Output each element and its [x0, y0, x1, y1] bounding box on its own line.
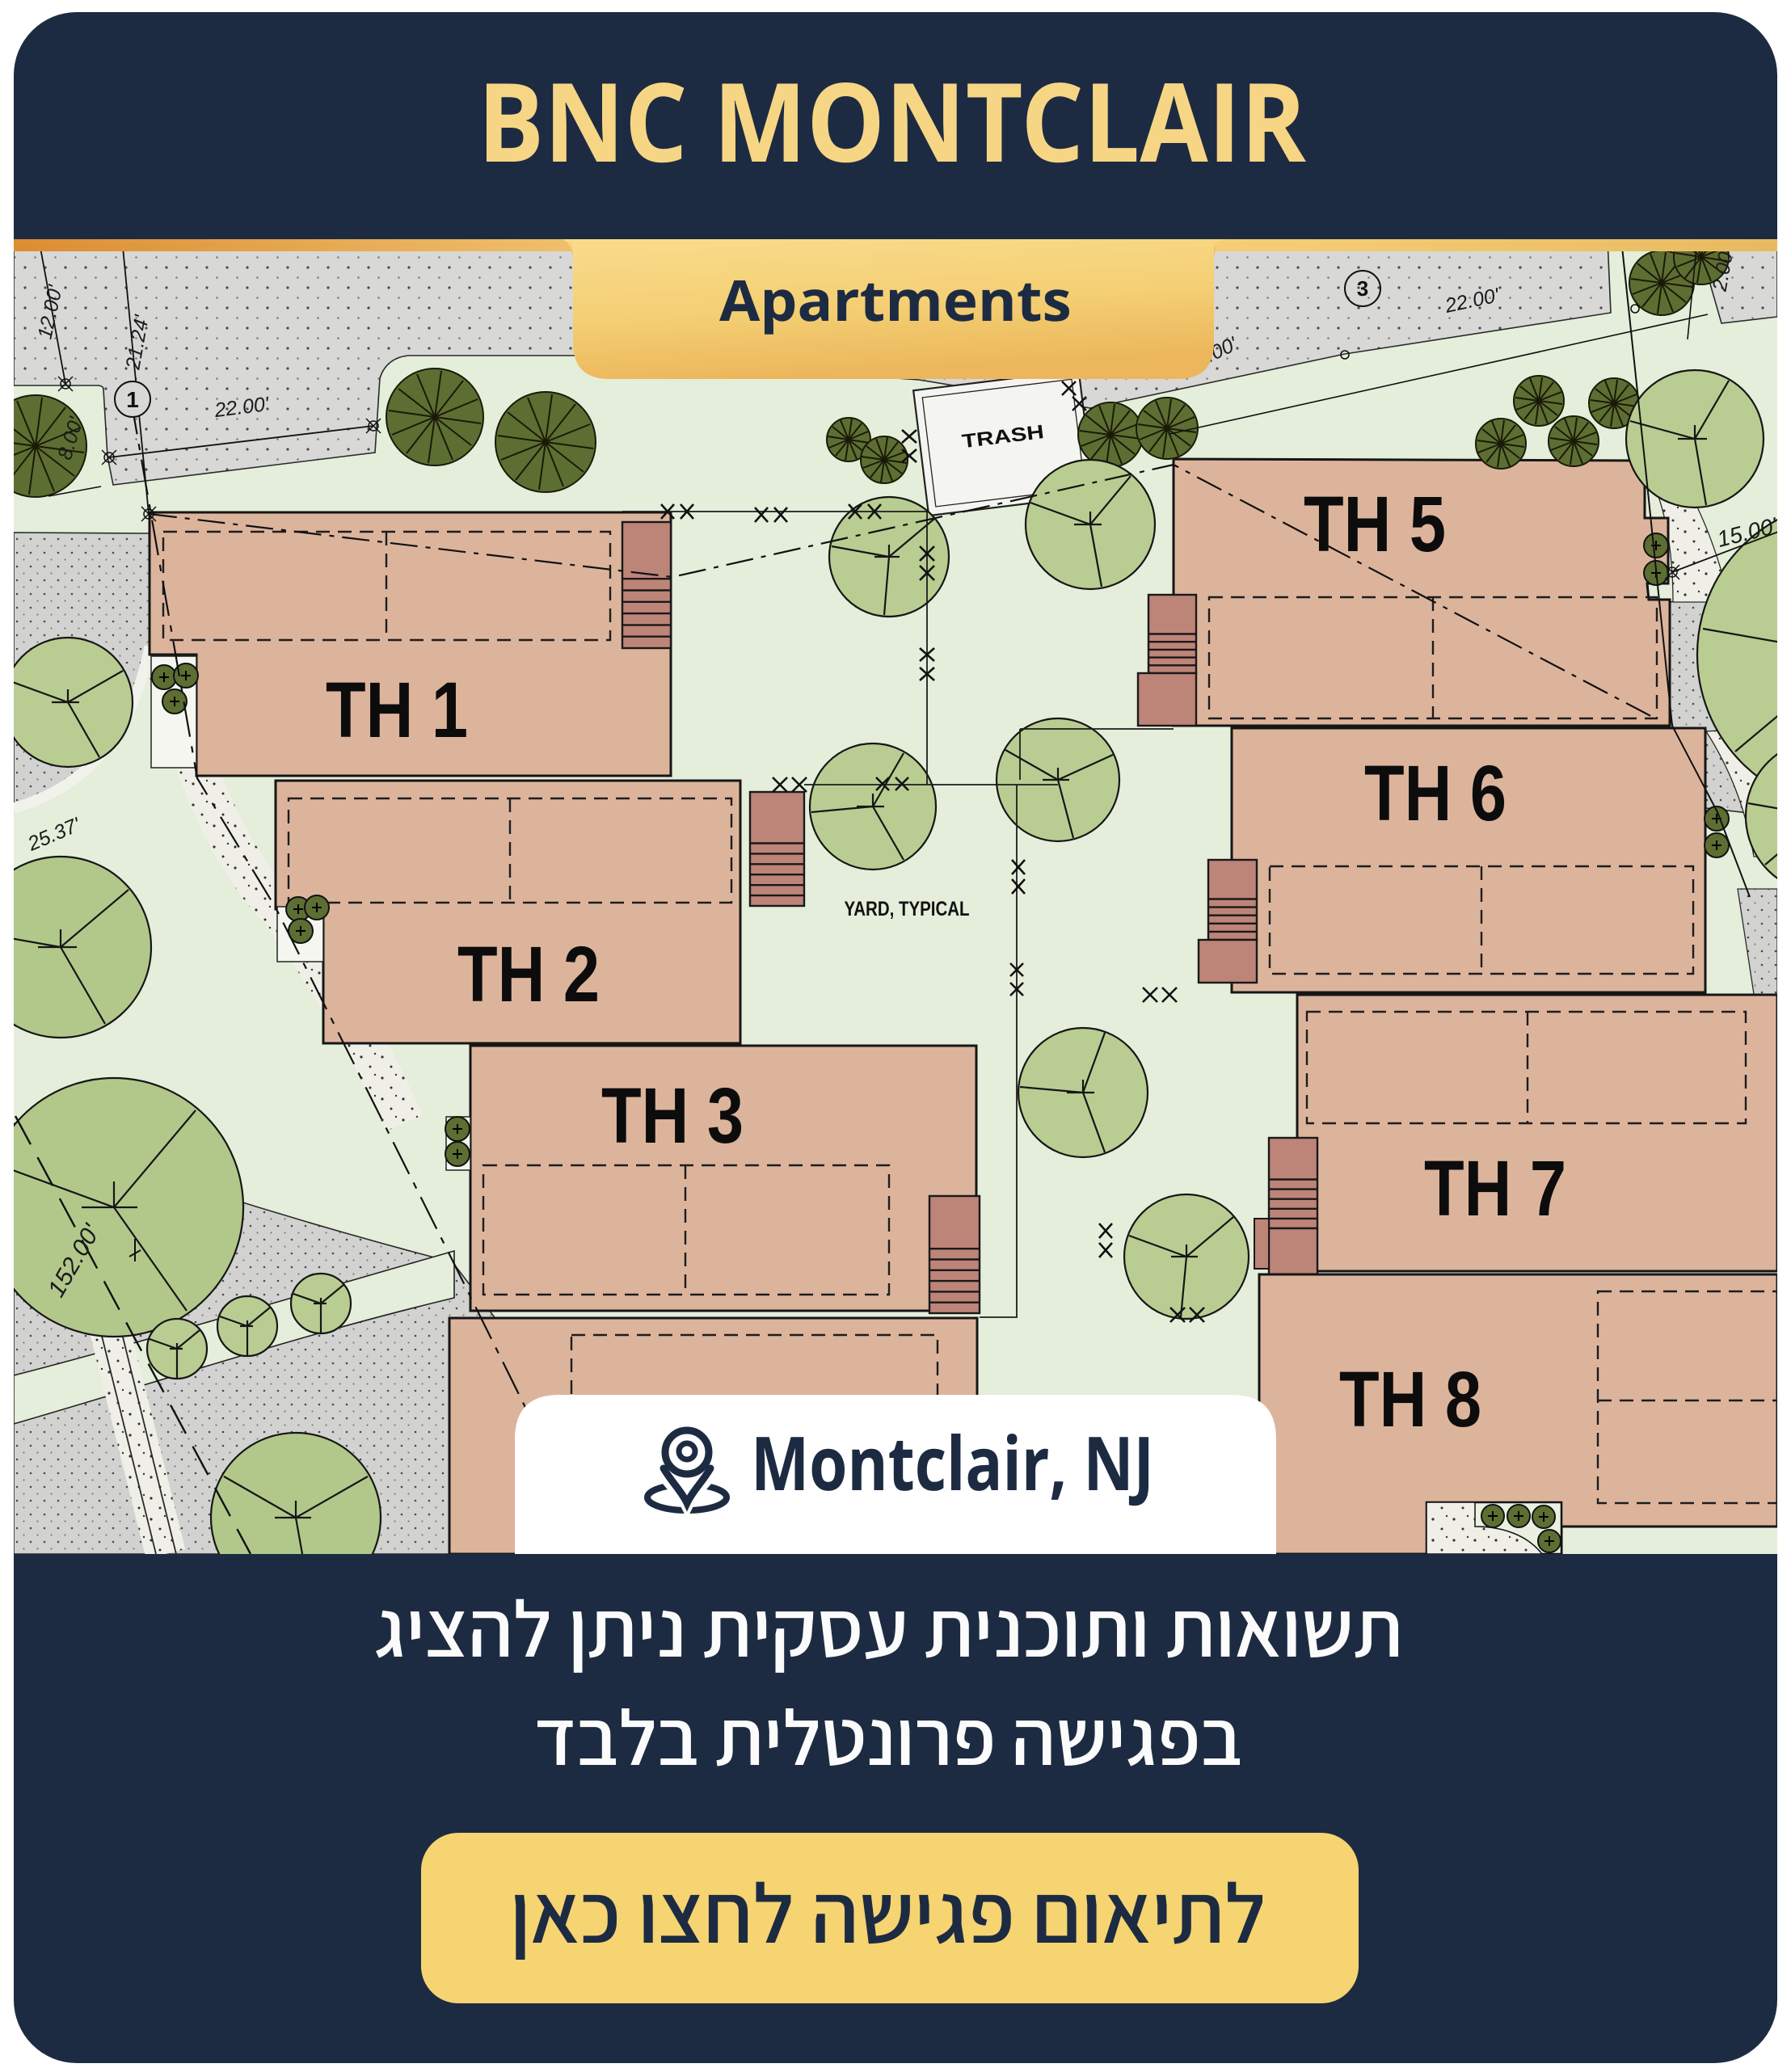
svg-text:1: 1: [126, 387, 139, 412]
svg-text:TH 2: TH 2: [457, 930, 600, 1018]
svg-text:TH 3: TH 3: [601, 1072, 744, 1160]
svg-text:TH 6: TH 6: [1364, 749, 1507, 837]
svg-text:YARD, TYPICAL: YARD, TYPICAL: [845, 898, 970, 920]
svg-text:TH 7: TH 7: [1424, 1144, 1566, 1232]
svg-text:3: 3: [1357, 276, 1368, 301]
svg-text:TH 1: TH 1: [326, 666, 468, 754]
svg-text:TH 5: TH 5: [1304, 480, 1446, 568]
svg-text:TH 8: TH 8: [1339, 1355, 1481, 1443]
